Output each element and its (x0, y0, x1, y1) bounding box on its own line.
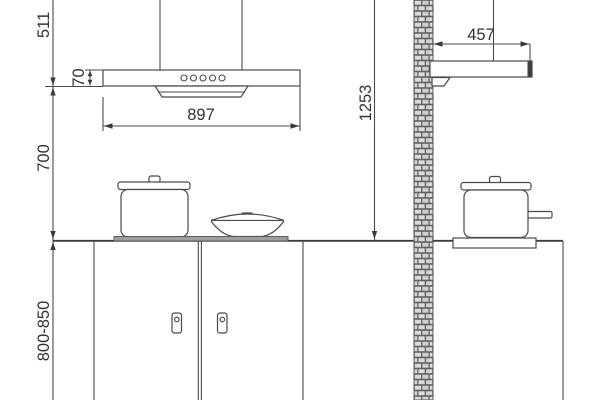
dimension-counter-to-ceiling: 1253 (357, 0, 377, 240)
dimension-chimney-height: 511 (35, 0, 56, 86)
cooktop-side (453, 238, 536, 248)
cooktop-front (114, 237, 288, 242)
door-handle-right (218, 313, 228, 333)
diagram-canvas: 511 700 800-850 (0, 0, 600, 400)
hood-front-edge (528, 62, 533, 77)
dim-label-1253: 1253 (357, 85, 375, 122)
glass-visor (155, 86, 248, 97)
dimension-hood-depth: 457 (433, 26, 530, 61)
dim-label-800-850: 800-850 (35, 301, 53, 362)
door-handle-left (172, 313, 182, 333)
chimney-duct (160, 0, 242, 70)
installation-diagram: 511 700 800-850 (0, 0, 600, 400)
stock-pot-front (118, 176, 190, 237)
dimension-hood-body-height: 70 (70, 68, 103, 86)
base-cabinet-front (94, 241, 303, 400)
stock-pot-side (461, 177, 552, 238)
dim-label-897: 897 (187, 106, 215, 124)
hood-body-side (430, 61, 532, 86)
side-view: 1253 457 (357, 0, 563, 400)
dim-label-700: 700 (35, 144, 53, 172)
dim-label-457: 457 (467, 26, 495, 44)
dim-label-511: 511 (35, 12, 53, 38)
dimension-hood-to-counter: 700 (35, 86, 56, 240)
wok-front (211, 213, 284, 237)
dim-label-70: 70 (70, 68, 88, 86)
brick-wall (414, 0, 433, 400)
glass-visor-side (432, 78, 450, 87)
front-view: 511 700 800-850 (35, 0, 303, 400)
dimension-counter-height: 800-850 (35, 240, 56, 400)
